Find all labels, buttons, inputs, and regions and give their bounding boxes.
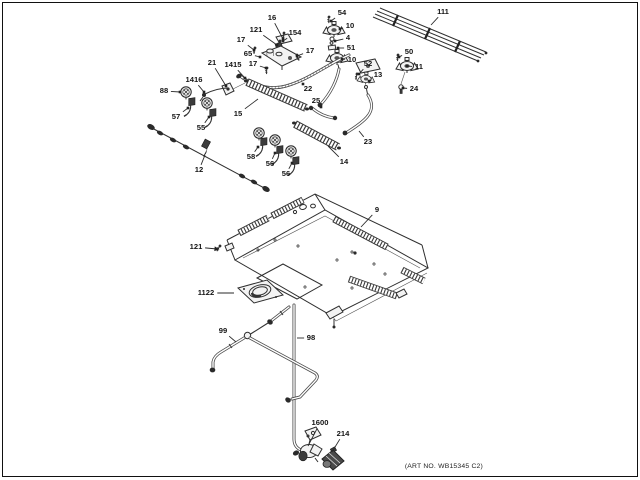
- part-label-11: 11: [415, 62, 424, 71]
- igniter-cap: [202, 98, 212, 111]
- leader-dot: [402, 87, 405, 90]
- leader-dot: [274, 152, 277, 155]
- part-label-17: 17: [237, 35, 245, 44]
- manifold-pipes-111: [373, 8, 487, 62]
- part-label-56: 56: [282, 169, 290, 178]
- part-label-21: 21: [208, 58, 217, 67]
- igniter-cap-88: [181, 87, 191, 100]
- part-label-52: 52: [364, 59, 372, 68]
- leader-dot: [341, 58, 344, 61]
- leader-dot: [406, 65, 409, 68]
- leader-dot: [337, 47, 340, 50]
- exploded-parts-diagram-page: 1612115417651717211415141688575515125856…: [0, 0, 640, 480]
- part-label-1415: 1415: [225, 60, 243, 69]
- part-label-10: 10: [346, 21, 354, 30]
- part-label-121: 121: [250, 25, 263, 34]
- leader-line-21: [215, 68, 226, 86]
- leader-dot: [253, 49, 256, 52]
- leader-line-88: [171, 91, 180, 92]
- part-label-25: 25: [312, 96, 321, 105]
- leader-dot: [244, 77, 247, 80]
- part-label-55: 55: [197, 123, 206, 132]
- leader-dot: [398, 56, 401, 59]
- leader-dot: [257, 146, 260, 149]
- orifice-24: [400, 89, 402, 94]
- part-label-24: 24: [410, 84, 419, 93]
- leader-dot: [179, 91, 182, 94]
- spark-module-65: [252, 31, 301, 74]
- part-label-57: 57: [172, 112, 180, 121]
- burner-rail-14: [292, 122, 341, 150]
- art-number: (ART NO. WB15345 C2): [405, 463, 483, 470]
- leader-line-23: [359, 131, 364, 137]
- leader-dot: [296, 55, 299, 58]
- part-label-88: 88: [160, 86, 168, 95]
- igniter-cap: [270, 135, 280, 148]
- pan-rail-9: [334, 219, 387, 247]
- igniter-cap: [286, 146, 296, 159]
- leader-dot: [203, 91, 206, 94]
- part-label-111: 111: [437, 7, 450, 16]
- part-label-14: 14: [340, 157, 349, 166]
- page-border: [3, 3, 638, 477]
- leader-dot: [358, 73, 361, 76]
- pan-rail: [272, 200, 303, 216]
- leader-dot: [276, 44, 279, 47]
- part-label-22: 22: [304, 84, 312, 93]
- burner-rail-15: [244, 80, 309, 111]
- part-label-98: 98: [307, 333, 315, 342]
- part-label-1416: 1416: [186, 75, 203, 84]
- part-label-54: 54: [338, 8, 347, 17]
- leader-dot: [187, 107, 190, 110]
- part-label-154: 154: [289, 28, 302, 37]
- burner-tube-25: [318, 69, 339, 107]
- leader-line-121: [263, 35, 277, 45]
- part-label-51: 51: [347, 43, 356, 52]
- part-label-58: 58: [247, 152, 255, 161]
- part-label-50: 50: [405, 47, 413, 56]
- leader-line-15: [245, 99, 258, 109]
- part-label-99: 99: [219, 326, 227, 335]
- igniter-electrode-57: [184, 96, 196, 118]
- leader-dot: [320, 106, 323, 109]
- leader-dot: [302, 83, 305, 86]
- part-label-15: 15: [234, 109, 243, 118]
- leader-dot: [339, 28, 342, 31]
- leader-dot: [282, 40, 285, 43]
- burner-tube-piece: [309, 106, 337, 120]
- part-label-16: 16: [268, 13, 276, 22]
- leader-dot: [259, 56, 262, 59]
- leader-line-99: [229, 336, 236, 342]
- part-label-65: 65: [244, 49, 253, 58]
- valve-10-upper: [323, 22, 345, 38]
- leader-dot: [265, 67, 268, 70]
- parts-diagram: 1612115417651717211415141688575515125856…: [0, 0, 640, 480]
- leader-dot: [225, 85, 228, 88]
- part-label-23: 23: [364, 137, 372, 146]
- part-label-1122: 1122: [198, 288, 214, 297]
- part-label-17: 17: [249, 59, 257, 68]
- leader-line-12: [201, 155, 205, 165]
- harness-connector: [201, 139, 210, 149]
- part-label-4: 4: [346, 33, 351, 42]
- part-label-13: 13: [374, 70, 382, 79]
- part-label-10: 10: [348, 55, 356, 64]
- leader-line-111: [431, 17, 438, 25]
- burner-tube-23: [343, 95, 372, 135]
- part-label-121: 121: [190, 242, 203, 251]
- part-labels: 1612115417651717211415141688575515125856…: [160, 7, 450, 452]
- igniter-electrode-55: [205, 107, 217, 129]
- part-label-9: 9: [375, 205, 379, 214]
- leader-dot: [368, 80, 371, 83]
- leader-dot: [291, 162, 294, 165]
- part-label-17: 17: [306, 46, 314, 55]
- burner-box-pan-9: [215, 194, 428, 329]
- part-label-56: 56: [266, 159, 274, 168]
- leader-dot: [208, 116, 211, 119]
- part-label-12: 12: [195, 165, 203, 174]
- leader-dot: [334, 40, 337, 43]
- leader-dot: [330, 20, 333, 23]
- part-label-214: 214: [337, 429, 350, 438]
- part-label-1600: 1600: [312, 418, 329, 427]
- pan-rail: [239, 218, 268, 233]
